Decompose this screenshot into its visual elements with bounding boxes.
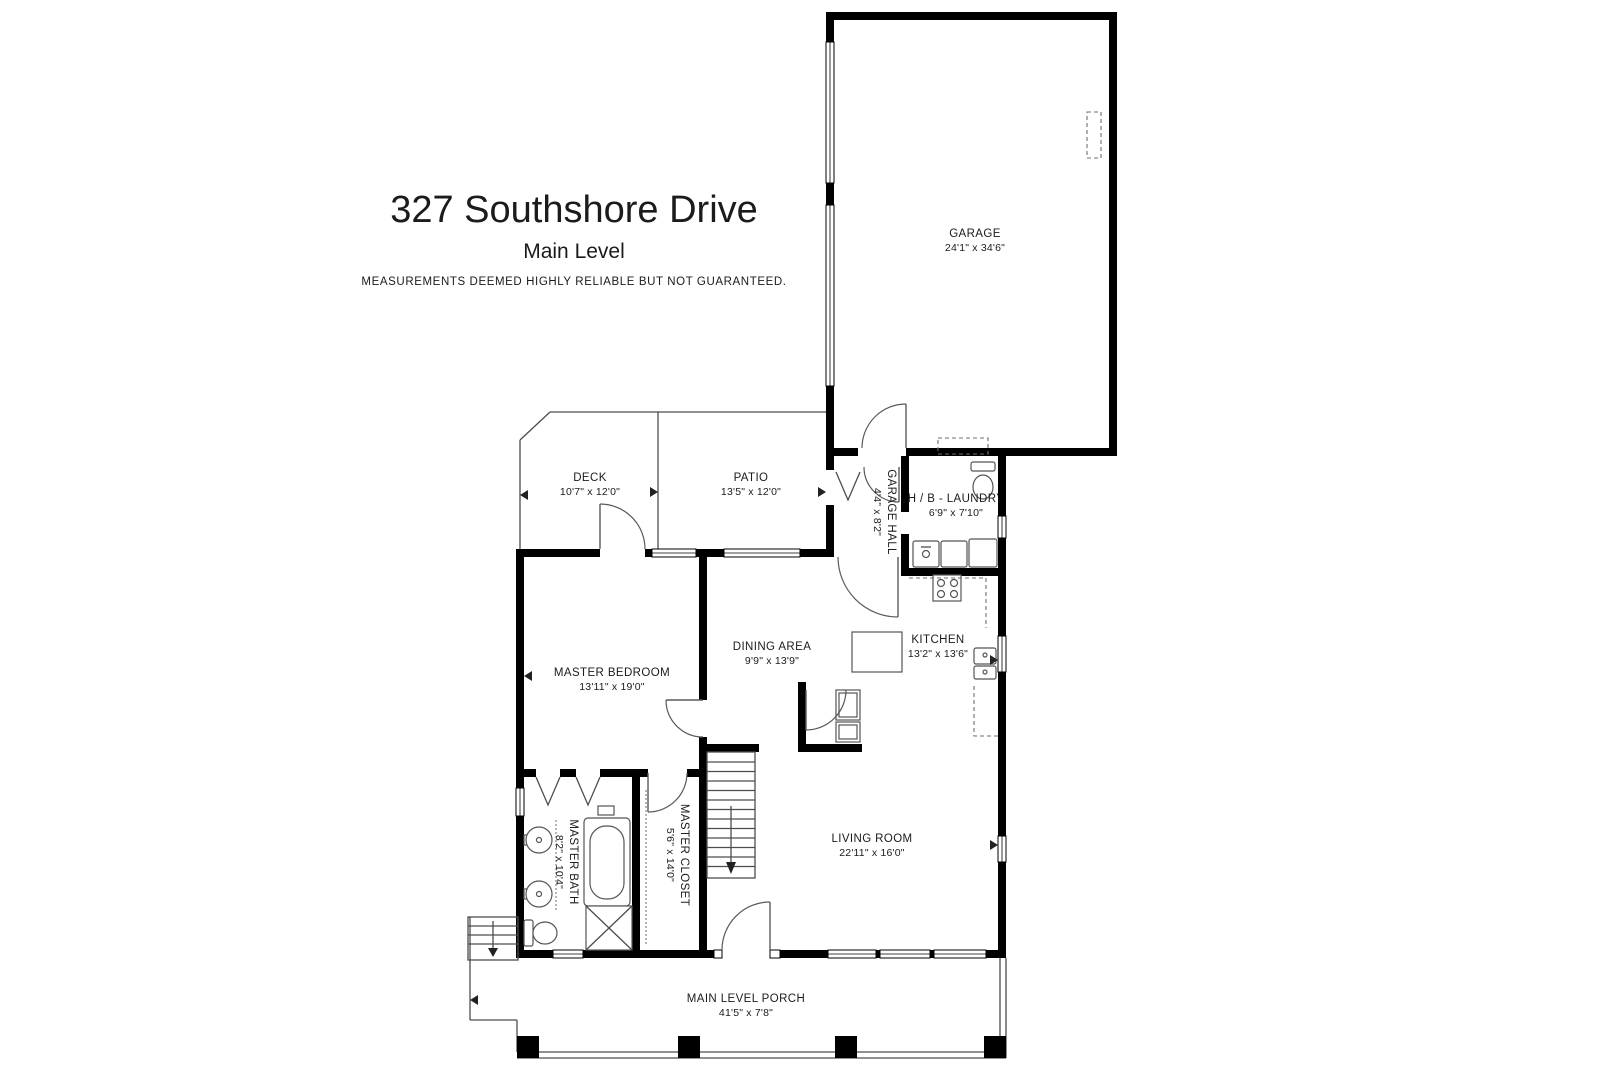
garage-hall-dims: 4'4" x 8'2": [871, 488, 883, 536]
bath-bifold-door: [536, 777, 560, 805]
garage-room: GARAGE 24'1" x 34'6": [826, 12, 1117, 456]
porch-dims: 41'5" x 7'8": [719, 1007, 773, 1019]
entry-door-arc: [722, 902, 770, 950]
living-room-label: LIVING ROOM: [831, 833, 912, 845]
dining-area-label: DINING AREA: [733, 641, 812, 653]
kitchen-label: KITCHEN: [911, 634, 964, 646]
page-title: 327 Southshore Drive: [390, 189, 758, 231]
garage-label: GARAGE: [949, 228, 1001, 240]
bedroom-door-arc: [666, 700, 703, 737]
bath-bifold-door: [576, 777, 600, 805]
master-closet-dims: 5'6" x 14'0": [664, 828, 676, 882]
laundry-label: H / B - LAUNDRY: [908, 493, 1005, 505]
master-closet-label: MASTER CLOSET: [678, 804, 690, 906]
porch-label: MAIN LEVEL PORCH: [687, 993, 805, 1005]
porch-post: [678, 1036, 700, 1058]
master-bath-dims: 8'2" x 10'4": [553, 835, 565, 889]
living-room-dims: 22'11" x 16'0": [839, 847, 905, 859]
tub-faucet: [598, 806, 614, 815]
master-bath-label-group: MASTER BATH 8'2" x 10'4": [553, 819, 579, 904]
kitchen-dims: 13'2" x 13'6": [908, 648, 968, 660]
floorplan-page: 327 Southshore Drive Main Level MEASUREM…: [0, 0, 1620, 1080]
hall-dining-door-arc: [838, 557, 898, 617]
master-closet-label-group: MASTER CLOSET 5'6" x 14'0": [664, 804, 690, 906]
laundry-sink-drain: [923, 551, 930, 558]
disclaimer-text: MEASUREMENTS DEEMED HIGHLY RELIABLE BUT …: [361, 276, 786, 288]
garage-door-arc: [862, 404, 906, 448]
hall-closet-bifold: [836, 472, 860, 500]
toilet-tank: [971, 462, 995, 471]
right-exterior-wall: [998, 448, 1006, 958]
porch-stairs-arrow: [488, 948, 498, 957]
toilet-bowl: [533, 922, 557, 944]
living-room: LIVING ROOM 22'11" x 16'0": [831, 833, 912, 859]
dryer: [969, 539, 997, 567]
washer: [941, 541, 967, 567]
patio-area: PATIO 13'5" x 12'0": [658, 412, 826, 498]
floorplan-drawing: 327 Southshore Drive Main Level MEASUREM…: [0, 0, 1620, 1080]
garage-dims: 24'1" x 34'6": [945, 242, 1005, 254]
deck-label: DECK: [573, 472, 607, 484]
porch-post: [517, 1036, 539, 1058]
page-subtitle: Main Level: [523, 240, 625, 263]
master-bath-label: MASTER BATH: [567, 819, 579, 904]
garage-wall-niche: [1087, 112, 1101, 158]
toilet-tank: [524, 920, 533, 946]
stove: [933, 575, 961, 601]
master-bedroom-dims: 13'11" x 19'0": [579, 681, 645, 693]
porch-post: [835, 1036, 857, 1058]
deck-dims: 10'7" x 12'0": [560, 486, 620, 498]
garage-hall-label: GARAGE HALL: [885, 469, 897, 555]
patio-dims: 13'5" x 12'0": [721, 486, 781, 498]
deck-door-arc: [600, 504, 645, 549]
master-closet-room: MASTER CLOSET 5'6" x 14'0": [646, 773, 690, 944]
basement-stairs: [703, 744, 759, 878]
master-bedroom-room: MASTER BEDROOM 13'11" x 19'0": [554, 667, 670, 693]
patio-label: PATIO: [734, 472, 769, 484]
garage-hall-room: GARAGE HALL 4'4" x 8'2": [826, 456, 909, 617]
laundry-room: H / B - LAUNDRY 6'9" x 7'10": [901, 462, 1006, 576]
kitchen-counter: [974, 686, 998, 736]
porch-post: [984, 1036, 1006, 1058]
dining-area-room: DINING AREA 9'9" x 13'9": [733, 641, 812, 667]
dining-area-dims: 9'9" x 13'9": [745, 655, 799, 667]
deck-area: DECK 10'7" x 12'0": [520, 412, 658, 549]
kitchen-island: [852, 632, 902, 672]
title-block: 327 Southshore Drive Main Level MEASUREM…: [361, 189, 786, 288]
laundry-dims: 6'9" x 7'10": [929, 507, 983, 519]
garage-hall-label-group: GARAGE HALL 4'4" x 8'2": [871, 469, 897, 555]
stairs-down-arrow: [726, 862, 736, 874]
master-bedroom-label: MASTER BEDROOM: [554, 667, 670, 679]
